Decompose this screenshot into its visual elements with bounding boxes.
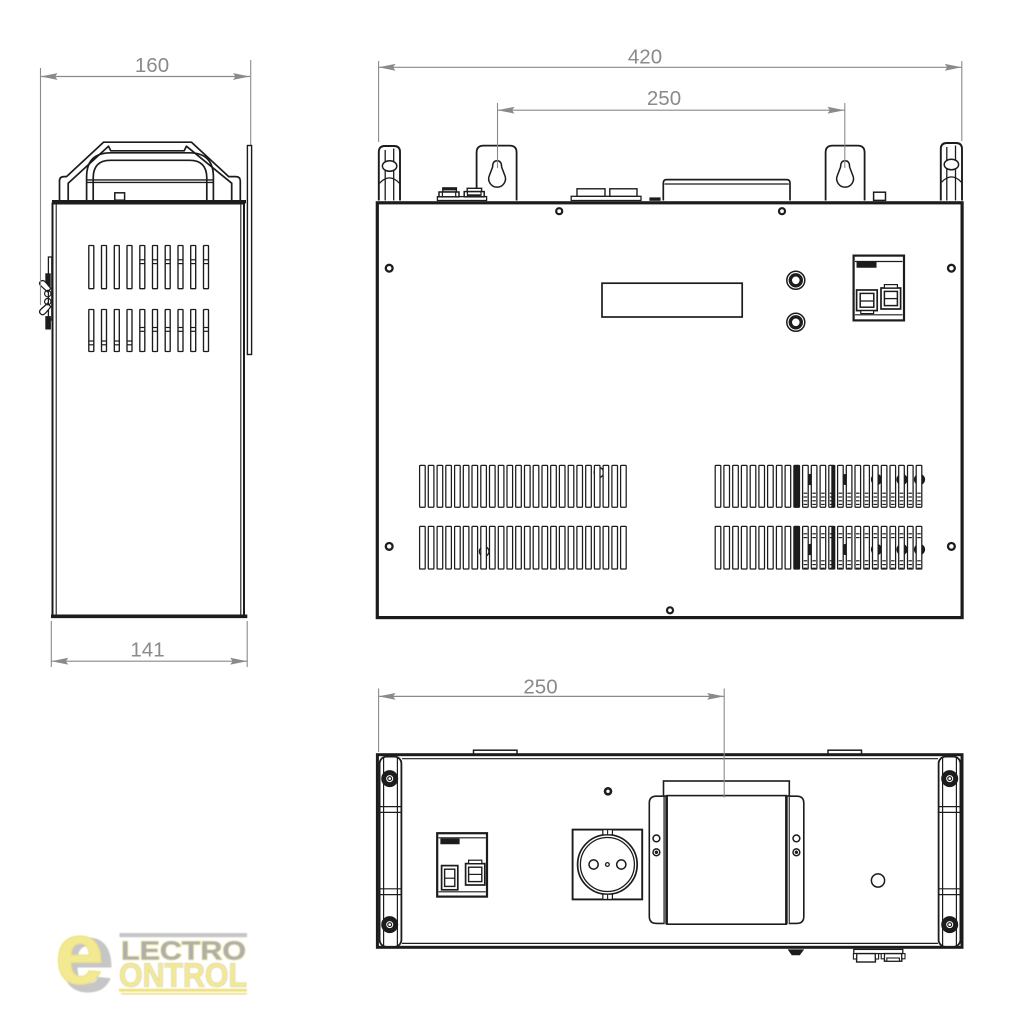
- svg-text:e: e: [55, 904, 104, 1003]
- svg-text:420: 420: [628, 46, 662, 69]
- svg-text:ONTROL: ONTROL: [119, 957, 247, 994]
- svg-text:141: 141: [130, 639, 164, 662]
- svg-text:160: 160: [135, 54, 169, 77]
- svg-text:250: 250: [523, 676, 557, 699]
- svg-text:250: 250: [647, 87, 681, 110]
